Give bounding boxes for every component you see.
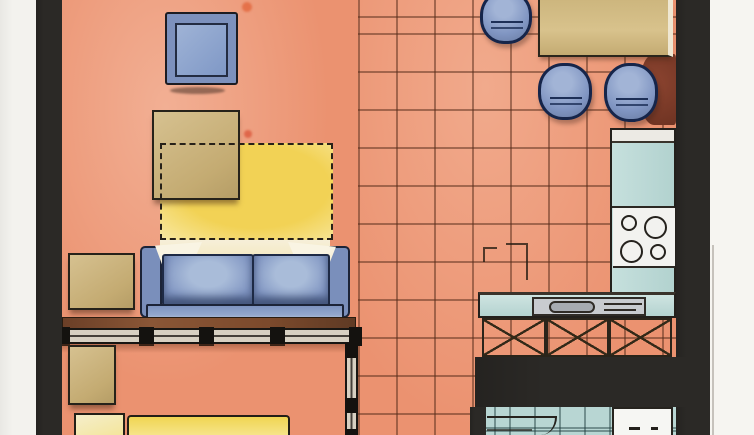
paper-margin-left [0,0,36,435]
kitchen-counter-bottom [478,292,676,318]
cooktop [613,208,675,268]
stool-left [538,63,592,120]
dining-table [538,0,673,57]
stool-detail [550,97,583,105]
washer-control [629,427,640,430]
wall-post [345,429,358,435]
armchair-shadow [170,87,225,94]
sofa-seat-cushion-left [162,254,254,306]
paint-dot-orange [242,2,252,12]
pencil-mark-bracket [483,247,497,262]
burner-small-2 [650,244,666,260]
paint-dot-red [244,130,252,138]
stool-detail [491,21,522,29]
rug-dashed-outline [160,143,333,240]
armchair [165,12,238,85]
sink-bowl [549,301,595,313]
cabinet-x-panel [546,318,609,357]
cabinet-x-panel [609,318,672,357]
shower-enclosure-line-low [487,429,532,431]
burner-small-1 [621,215,637,231]
burner-large-2 [620,240,643,263]
bed-blanket [127,415,290,435]
wall-bathroom-top [475,357,710,407]
kitchen-counter-right [610,128,676,310]
sink-drainboard [532,297,646,316]
paper-edge-line [712,245,714,435]
cabinet-x-panel [482,318,546,357]
side-table [68,253,135,310]
bed-pillow [74,413,125,435]
drain-line [604,303,642,305]
wall-left [36,0,62,435]
washer-control [651,427,658,430]
pencil-mark-bracket [506,243,528,280]
sofa [140,238,350,325]
wall-bathroom-left [470,407,486,435]
base-cabinets [482,318,672,357]
armchair-seat [175,23,228,77]
washer [612,407,673,435]
stool-detail [616,98,649,106]
floor-plan-scan [0,0,754,435]
paper-margin-right [710,0,754,435]
stool-right [604,63,658,122]
sofa-seat-cushion-right [252,254,330,306]
stool-top [480,0,532,44]
drain-line [604,309,636,311]
burner-large-1 [644,216,667,239]
bedroom-glazed-wall [345,343,358,435]
wall-post [345,398,358,413]
nightstand [68,345,116,405]
counter-top-strip [612,130,674,143]
glazed-partition [56,328,362,344]
wall-post [345,343,358,358]
